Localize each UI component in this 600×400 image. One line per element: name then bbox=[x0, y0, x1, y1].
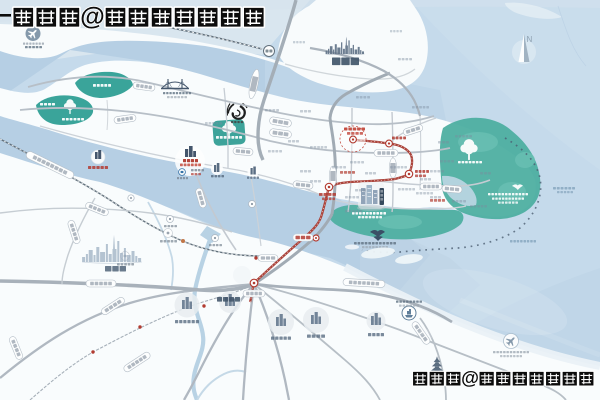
svg-text:@: @ bbox=[80, 3, 105, 31]
svg-text:@: @ bbox=[461, 367, 479, 388]
